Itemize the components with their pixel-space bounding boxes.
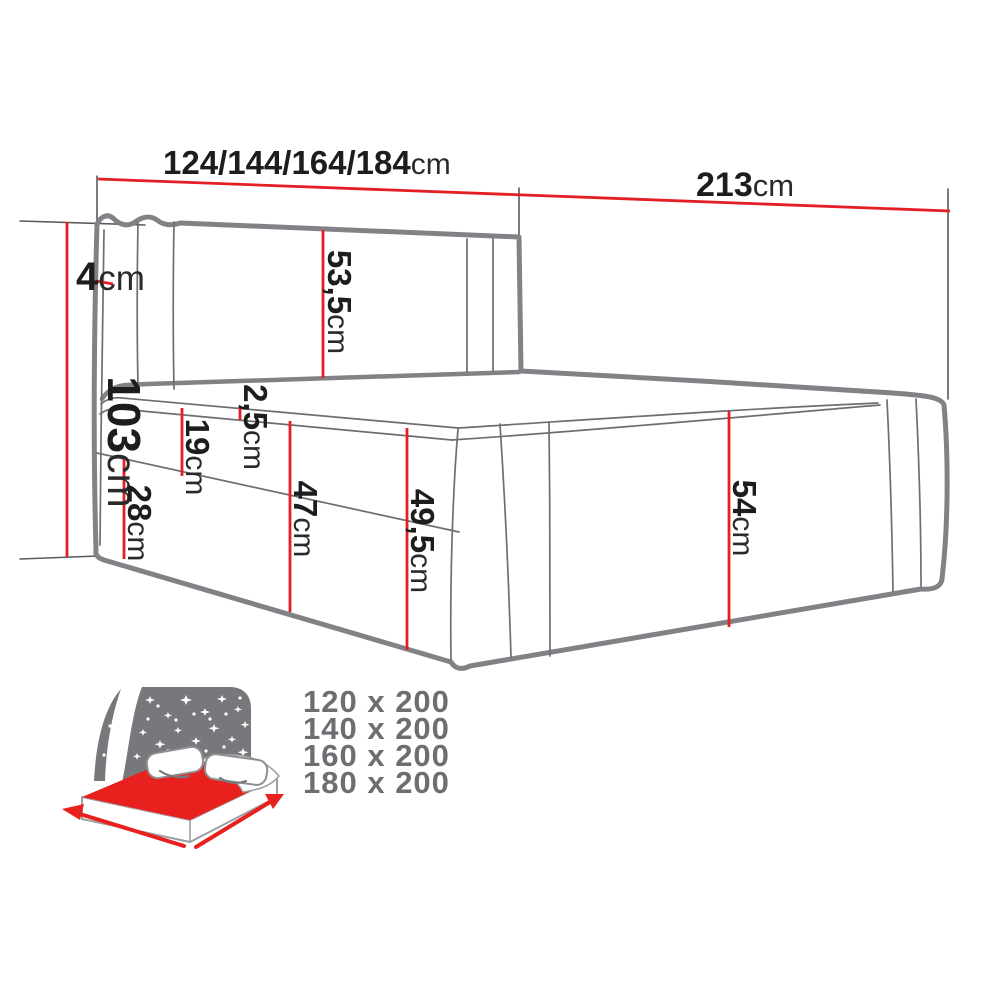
far-corner-seam-1 bbox=[887, 400, 893, 591]
dimension-labels: 124/144/164/184cm 213cm 4cm 103cm 53,5cm… bbox=[76, 144, 794, 593]
foot-corner-seam-3 bbox=[549, 422, 550, 656]
dim-label-54: 54cm bbox=[726, 480, 763, 557]
foot-corner-seam-2 bbox=[500, 424, 511, 657]
dim-line-top bbox=[98, 179, 950, 211]
dim-label-19: 19cm bbox=[179, 419, 216, 496]
moon-sliver-shape bbox=[94, 689, 121, 781]
dim-label-28: 28cm bbox=[121, 485, 158, 562]
foot-corner-seam-1 bbox=[451, 429, 458, 660]
headboard-seam-left-1 bbox=[137, 222, 138, 386]
headboard-seam-left-2 bbox=[173, 222, 174, 389]
bed-size-night-icon bbox=[62, 687, 284, 847]
far-corner-seam-2 bbox=[916, 399, 921, 586]
mattress-band-seam bbox=[100, 409, 452, 440]
dim-label-4: 4cm bbox=[76, 255, 145, 299]
dim-label-53-5: 53,5cm bbox=[321, 250, 358, 354]
mattress-band-seam-foot bbox=[452, 405, 880, 440]
available-sizes-list: 120 x 200 140 x 200 160 x 200 180 x 200 bbox=[303, 684, 450, 800]
diagram-page: 124/144/164/184cm 213cm 4cm 103cm 53,5cm… bbox=[0, 0, 1000, 1000]
bed-drawing bbox=[94, 216, 947, 669]
mattress-foot-edge bbox=[458, 403, 878, 428]
dim-label-2-5: 2,5cm bbox=[237, 384, 274, 470]
size-option-180x200: 180 x 200 bbox=[303, 765, 450, 800]
dim-label-49-5: 49,5cm bbox=[404, 489, 441, 593]
width-arrow-head bbox=[62, 804, 84, 820]
dim-label-length: 213cm bbox=[696, 166, 794, 204]
dim-label-width: 124/144/164/184cm bbox=[163, 144, 451, 181]
extension-line-bottom-left-horizontal bbox=[20, 556, 98, 559]
bed-dimensions-diagram: 124/144/164/184cm 213cm 4cm 103cm 53,5cm… bbox=[0, 0, 1000, 1000]
mattress-top-edge bbox=[102, 372, 519, 399]
bed-silhouette bbox=[94, 216, 947, 669]
corner-seams bbox=[451, 399, 921, 660]
dim-label-47: 47cm bbox=[287, 481, 324, 558]
